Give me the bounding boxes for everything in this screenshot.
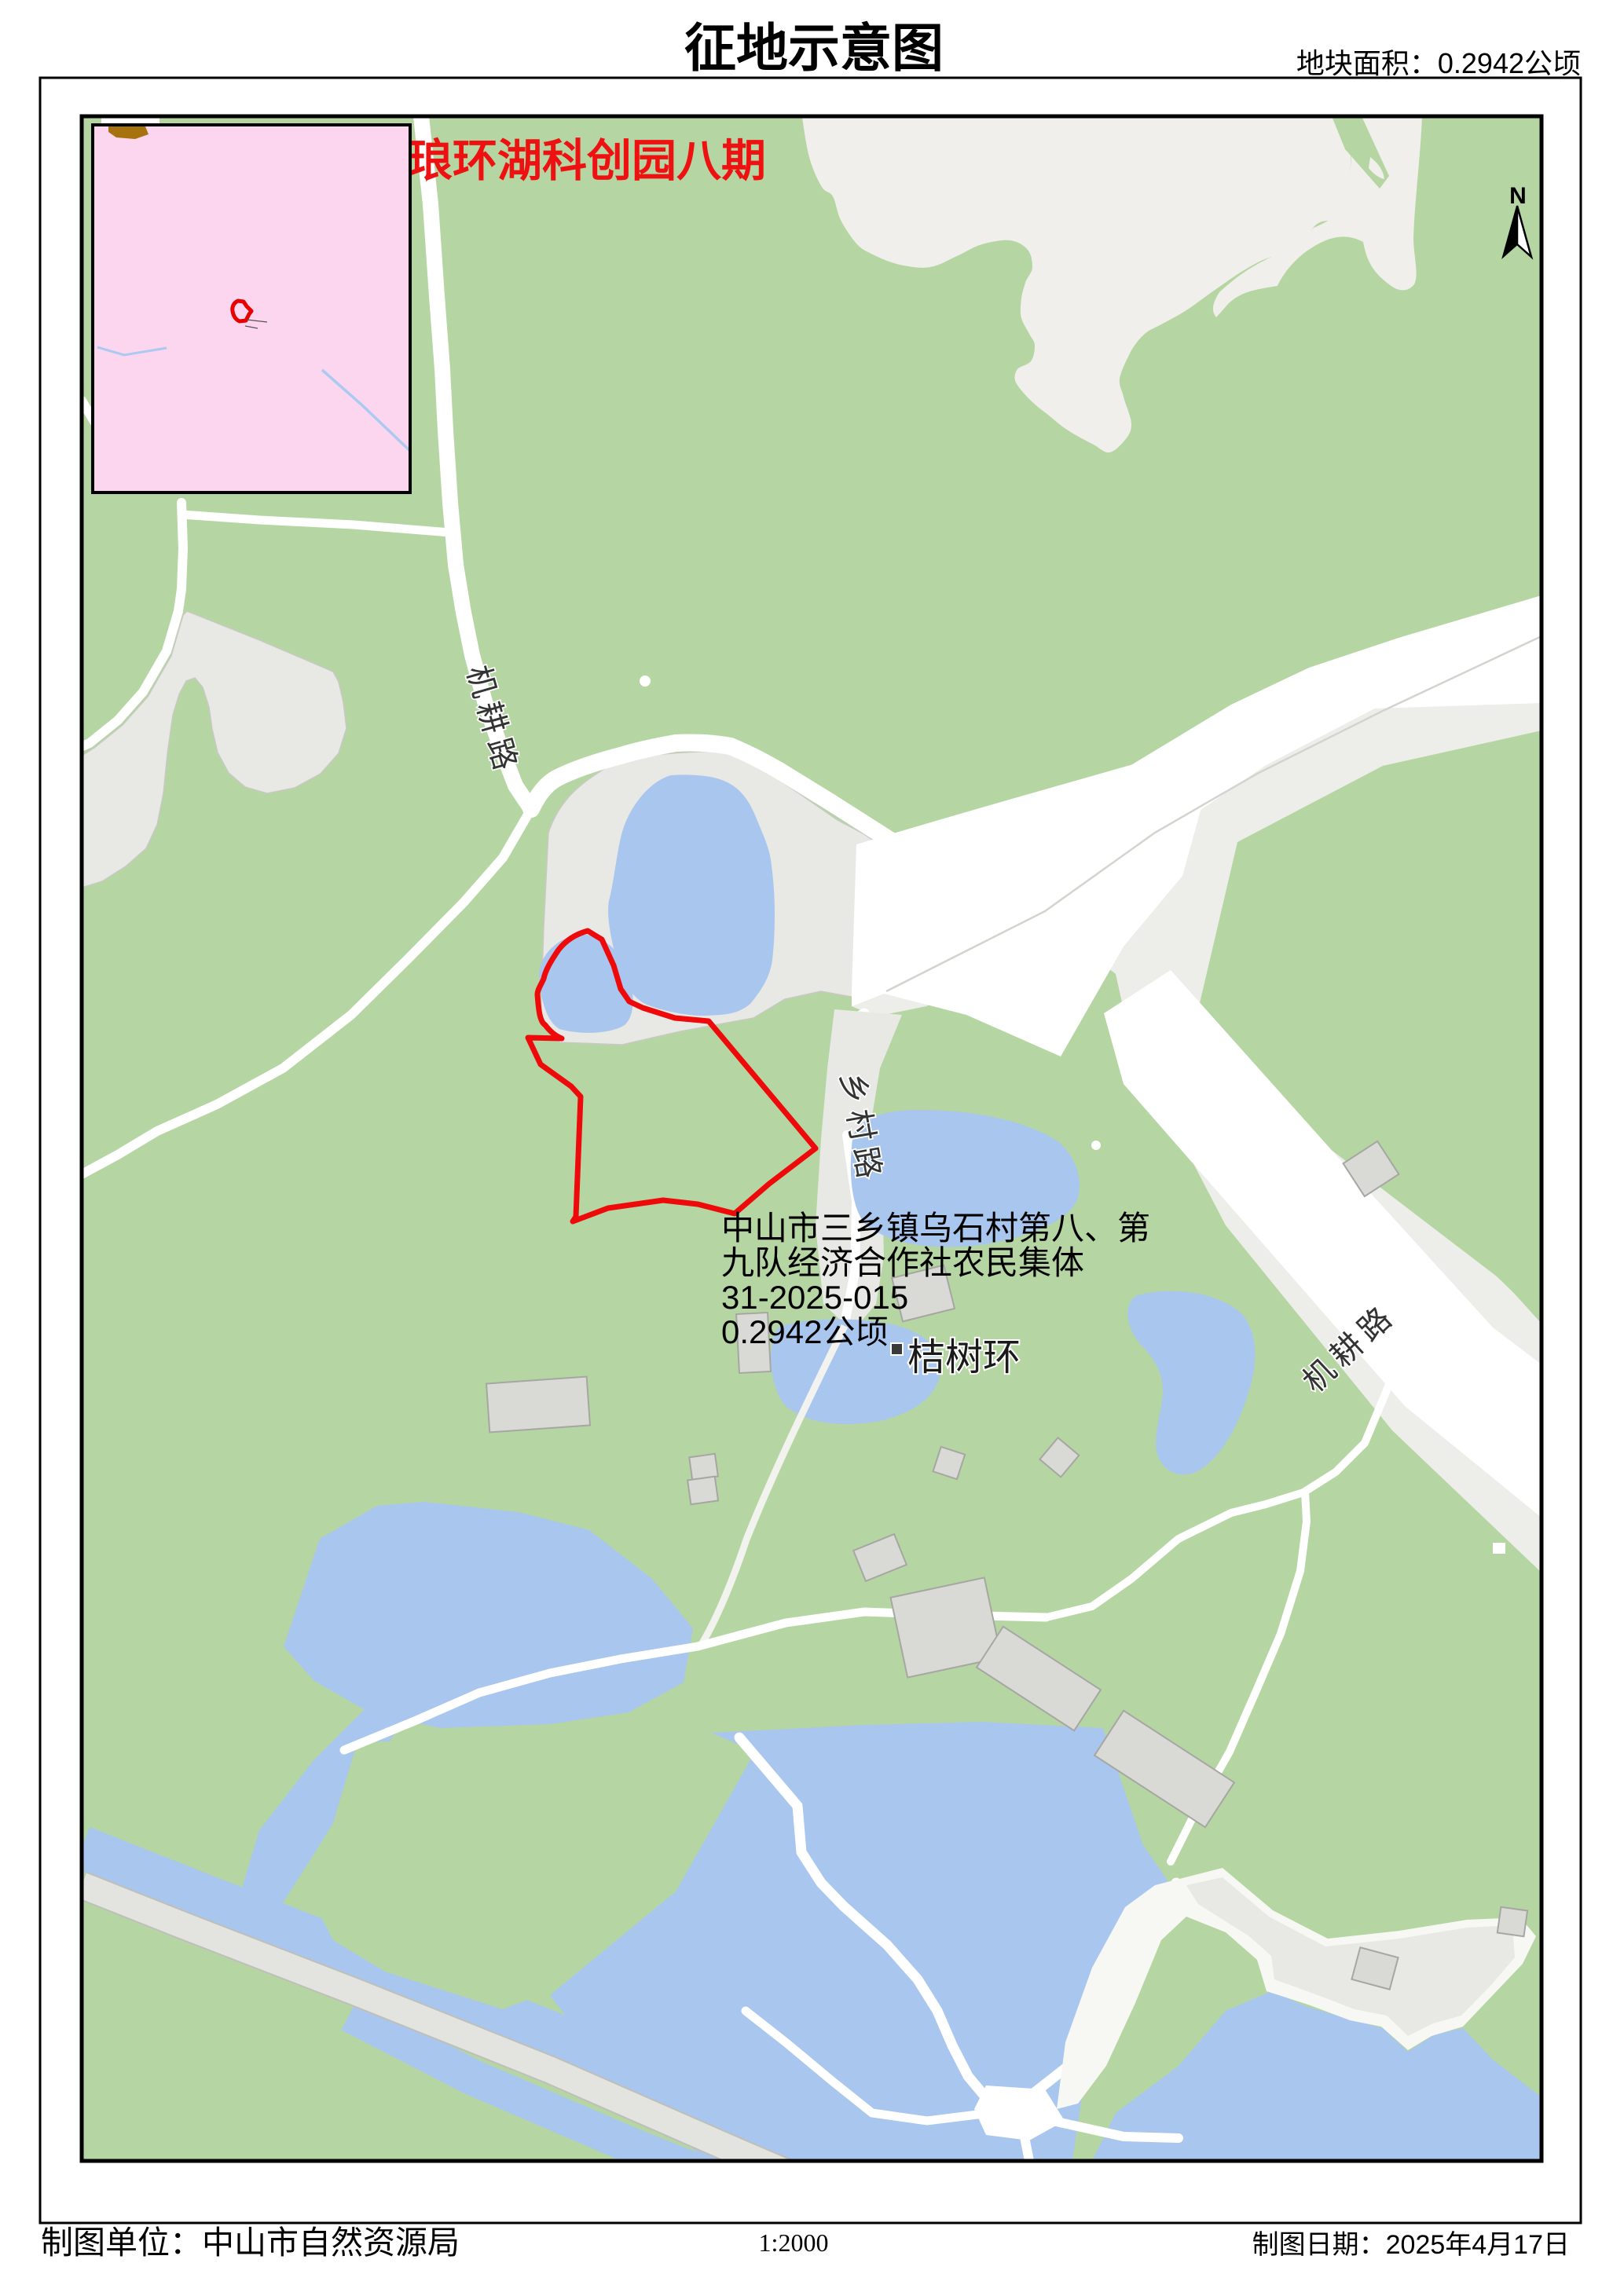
svg-text:九队经济合作社农民集体: 九队经济合作社农民集体 (721, 1244, 1084, 1281)
svg-text:N: N (1509, 183, 1527, 209)
svg-text:0.2942公顷: 0.2942公顷 (721, 1313, 888, 1350)
svg-text:31-2025-015: 31-2025-015 (721, 1279, 908, 1316)
svg-text:琅环湖科创园八期: 琅环湖科创园八期 (408, 136, 766, 186)
svg-text:制图日期：2025年4月17日: 制图日期：2025年4月17日 (1252, 2230, 1570, 2260)
svg-text:制图单位：中山市自然资源局: 制图单位：中山市自然资源局 (41, 2225, 460, 2261)
svg-text:1:2000: 1:2000 (759, 2228, 829, 2257)
svg-text:征地示意图: 征地示意图 (684, 19, 944, 77)
svg-text:地块面积：0.2942公顷: 地块面积：0.2942公顷 (1296, 47, 1581, 79)
svg-text:桔树环: 桔树环 (907, 1337, 1021, 1379)
svg-text:中山市三乡镇乌石村第八、第: 中山市三乡镇乌石村第八、第 (721, 1210, 1150, 1247)
